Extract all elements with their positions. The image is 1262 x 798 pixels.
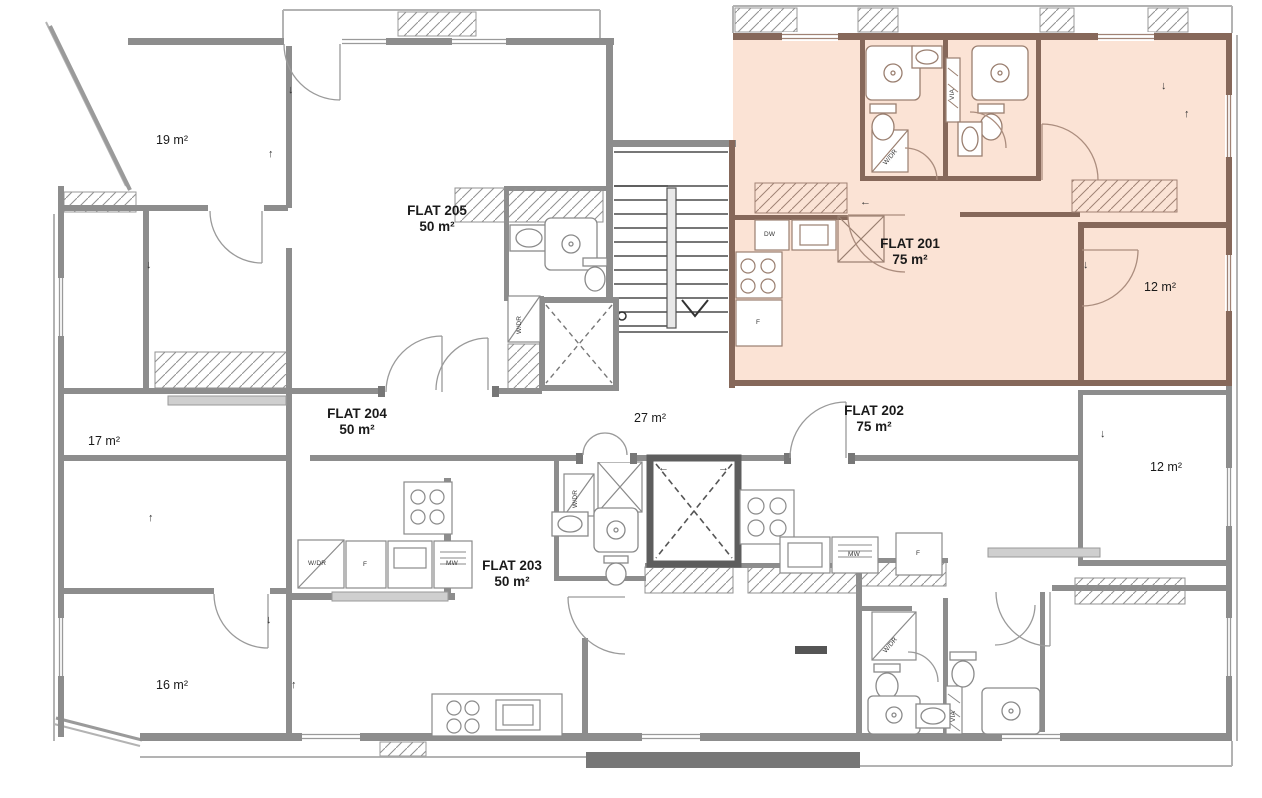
direction-arrow-up: ↑ [291,679,297,691]
direction-arrow-right: → [718,462,729,474]
via-duct-label: VIA [950,711,957,722]
direction-arrow-up: ↑ [1184,108,1190,120]
floor-plan-drawing [0,0,1262,798]
washer-dryer-label: W/DR [516,316,523,334]
microwave-label: MW [848,551,860,558]
washer-dryer-label: W/DR [308,560,326,567]
direction-arrow-left: ← [658,462,669,474]
floor-plan: FLAT 201 75 m² FLAT 202 75 m² FLAT 203 5… [0,0,1262,798]
dark-bar [795,646,827,654]
flat-202-label[interactable]: FLAT 202 75 m² [844,403,904,435]
microwave-label: MW [446,560,458,567]
staircase [614,152,728,332]
room-area-19: 19 m² [156,133,188,147]
bottom-balcony-slab [586,752,860,768]
flat-204-label[interactable]: FLAT 204 50 m² [327,406,387,438]
room-area-17: 17 m² [88,434,120,448]
flat-204-kitchen [346,482,472,588]
stair-direction-arrow [682,300,708,316]
flat-205-bathroom [510,218,607,291]
via-duct-label: VIA [949,89,956,100]
direction-arrow-down: ↓ [1083,259,1089,271]
flat-203-bathroom [552,508,638,585]
flat-name: FLAT 204 [327,406,387,422]
fridge-label: F [916,550,920,557]
room-area-12-lower: 12 m² [1150,460,1182,474]
door-jambs [378,386,855,464]
direction-arrow-down: ↓ [1161,80,1167,92]
flat-area: 75 m² [880,252,940,268]
direction-arrow-down: ↓ [266,614,272,626]
direction-arrow-up: ↑ [148,512,154,524]
direction-arrow-left: ← [860,196,871,208]
diagonal-wall-bottom [56,718,142,740]
flat-203-label[interactable]: FLAT 203 50 m² [482,558,542,590]
flat-name: FLAT 205 [407,203,467,219]
diagonal-wall [50,26,130,190]
flat-202-kitchen [740,490,942,575]
flat-205-label[interactable]: FLAT 205 50 m² [407,203,467,235]
flat-area: 50 m² [407,219,467,235]
direction-arrow-down: ↓ [1100,428,1106,440]
fridge-label: F [756,319,760,326]
direction-arrow-up: ↑ [268,148,274,160]
elevator-shaft-upper [542,300,616,388]
flat-area: 75 m² [844,419,904,435]
flat-203-kitchen [432,694,562,736]
flat-name: FLAT 202 [844,403,904,419]
room-area-27: 27 m² [634,411,666,425]
room-area-16: 16 m² [156,678,188,692]
fridge-label: F [363,561,367,568]
flat-name: FLAT 201 [880,236,940,252]
washer-dryer-label: W/DR [572,490,579,508]
flat-area: 50 m² [482,574,542,590]
flat-area: 50 m² [327,422,387,438]
dishwasher-label: DW [764,231,775,238]
direction-arrow-down: ↓ [288,84,294,96]
direction-arrow-down: ↓ [146,259,152,271]
flat-name: FLAT 203 [482,558,542,574]
flat-201-label[interactable]: FLAT 201 75 m² [880,236,940,268]
room-area-12-upper: 12 m² [1144,280,1176,294]
